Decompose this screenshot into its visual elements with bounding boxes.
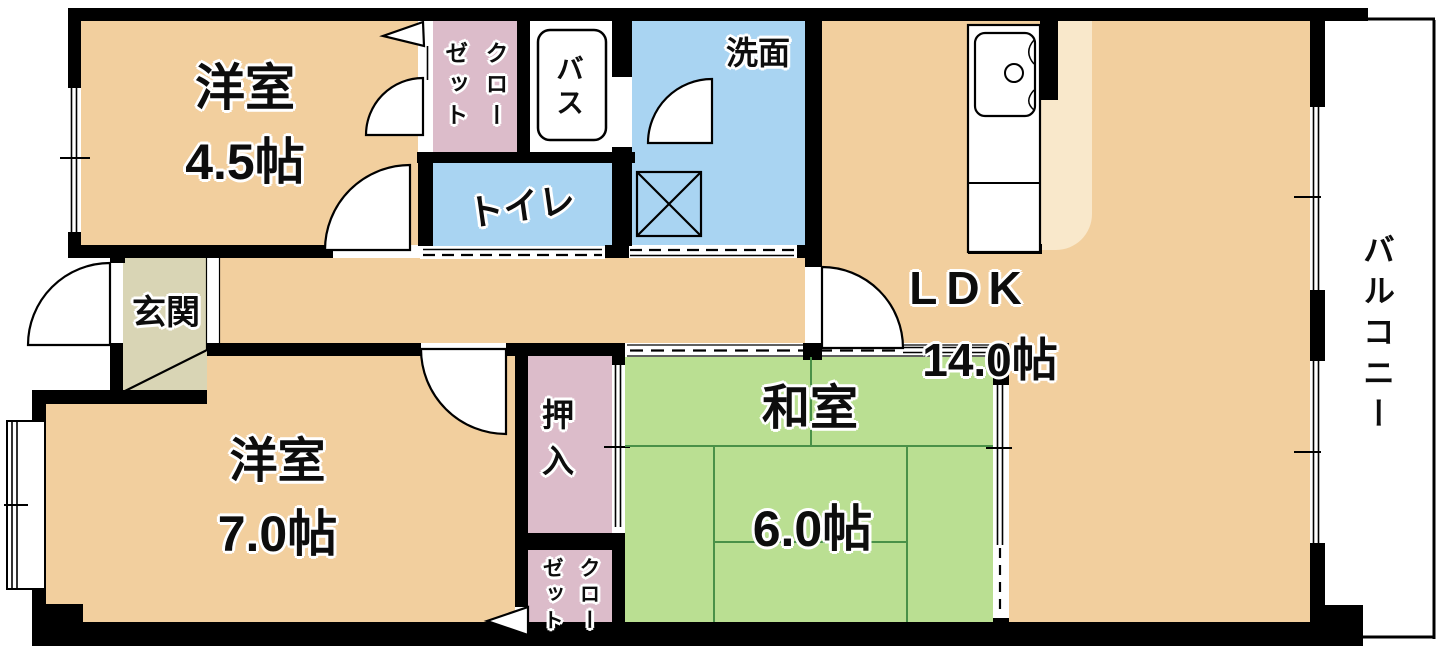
closet-top-label: クローゼット bbox=[433, 26, 515, 148]
kitchen-counter bbox=[968, 25, 1040, 252]
room-japanese-size: 6.0帖 bbox=[715, 492, 910, 558]
kitchen-faucet bbox=[1005, 64, 1023, 82]
door-arc-room70 bbox=[421, 349, 506, 434]
room-western-4-5-label: 洋室 bbox=[160, 52, 330, 116]
entrance-step-diagonal bbox=[123, 350, 207, 392]
bath-label: バス bbox=[548, 40, 588, 136]
entrance-label: 玄関 bbox=[124, 286, 208, 332]
room-ldk-label: LDK bbox=[880, 258, 1060, 318]
door-arc-bath bbox=[648, 79, 712, 143]
room-western-7-0-label: 洋室 bbox=[190, 424, 365, 488]
room-ldk-size: 14.0帖 bbox=[870, 326, 1110, 388]
closet-bottom-label: クローゼット bbox=[534, 552, 606, 640]
room-western-7-0-size: 7.0帖 bbox=[180, 498, 375, 562]
balcony-label: バルコニー bbox=[1352, 220, 1400, 450]
washroom-label: 洗面 bbox=[712, 30, 804, 72]
floor-plan: 洋室 4.5帖 洋室 7.0帖 和室 6.0帖 LDK 14.0帖 玄関 洗面 … bbox=[0, 0, 1446, 649]
door-arc-closet-top bbox=[366, 78, 423, 135]
door-wedge-closet-top bbox=[383, 22, 424, 46]
room-western-4-5-size: 4.5帖 bbox=[150, 126, 340, 190]
door-arc-entrance bbox=[28, 263, 110, 345]
oshiire-label: 押入 bbox=[533, 388, 579, 500]
door-bifold-closet-bottom bbox=[487, 607, 528, 635]
washing-machine-pan bbox=[637, 172, 701, 236]
